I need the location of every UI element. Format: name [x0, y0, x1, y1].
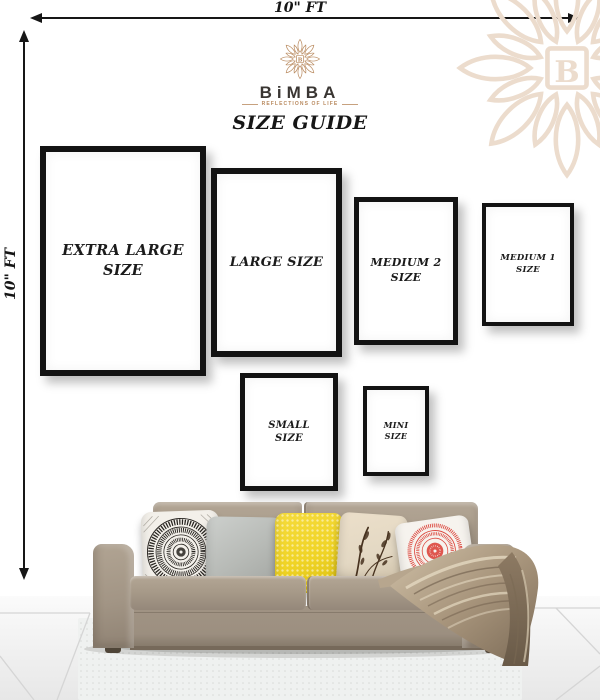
- size-guide-poster: 10" FT 10" FT B B BiMBA REFLECTION: [0, 0, 600, 700]
- page-title: SIZE GUIDE: [200, 112, 400, 134]
- brand-tagline: REFLECTIONS OF LIFE: [230, 101, 370, 107]
- height-dimension-label: 10" FT: [3, 244, 19, 304]
- arrow-down-head-icon: [19, 568, 29, 580]
- brand-logo-mandala-icon: B: [279, 38, 321, 80]
- frame-extra-large: EXTRA LARGESIZE: [40, 146, 206, 376]
- frame-small-label: SMALLSIZE: [268, 419, 310, 446]
- throw-blanket: [376, 526, 548, 668]
- frame-medium-2-label: MEDIUM 2SIZE: [371, 256, 442, 286]
- frame-extra-large-label: EXTRA LARGESIZE: [62, 241, 184, 280]
- frame-large: LARGE SIZE: [211, 168, 342, 357]
- watermark-monogram: B: [554, 55, 579, 90]
- frame-large-label: LARGE SIZE: [230, 254, 323, 272]
- arrow-line: [23, 39, 25, 571]
- brand-name: BiMBA: [230, 83, 370, 103]
- height-measure-arrow: [23, 30, 25, 580]
- frame-mini: MINISIZE: [363, 386, 429, 476]
- width-dimension-label: 10" FT: [240, 0, 360, 16]
- frame-medium-1-label: MEDIUM 1SIZE: [500, 253, 555, 276]
- frame-medium-1: MEDIUM 1SIZE: [482, 203, 574, 326]
- brand-monogram: B: [298, 58, 303, 64]
- sofa-seat-cushion-left: [130, 576, 306, 610]
- frame-small: SMALLSIZE: [240, 373, 338, 491]
- frame-medium-2: MEDIUM 2SIZE: [354, 197, 458, 345]
- watermark-mandala-icon: B: [452, 0, 600, 183]
- sofa-arm-left: [93, 544, 134, 648]
- frame-mini-label: MINISIZE: [384, 420, 409, 442]
